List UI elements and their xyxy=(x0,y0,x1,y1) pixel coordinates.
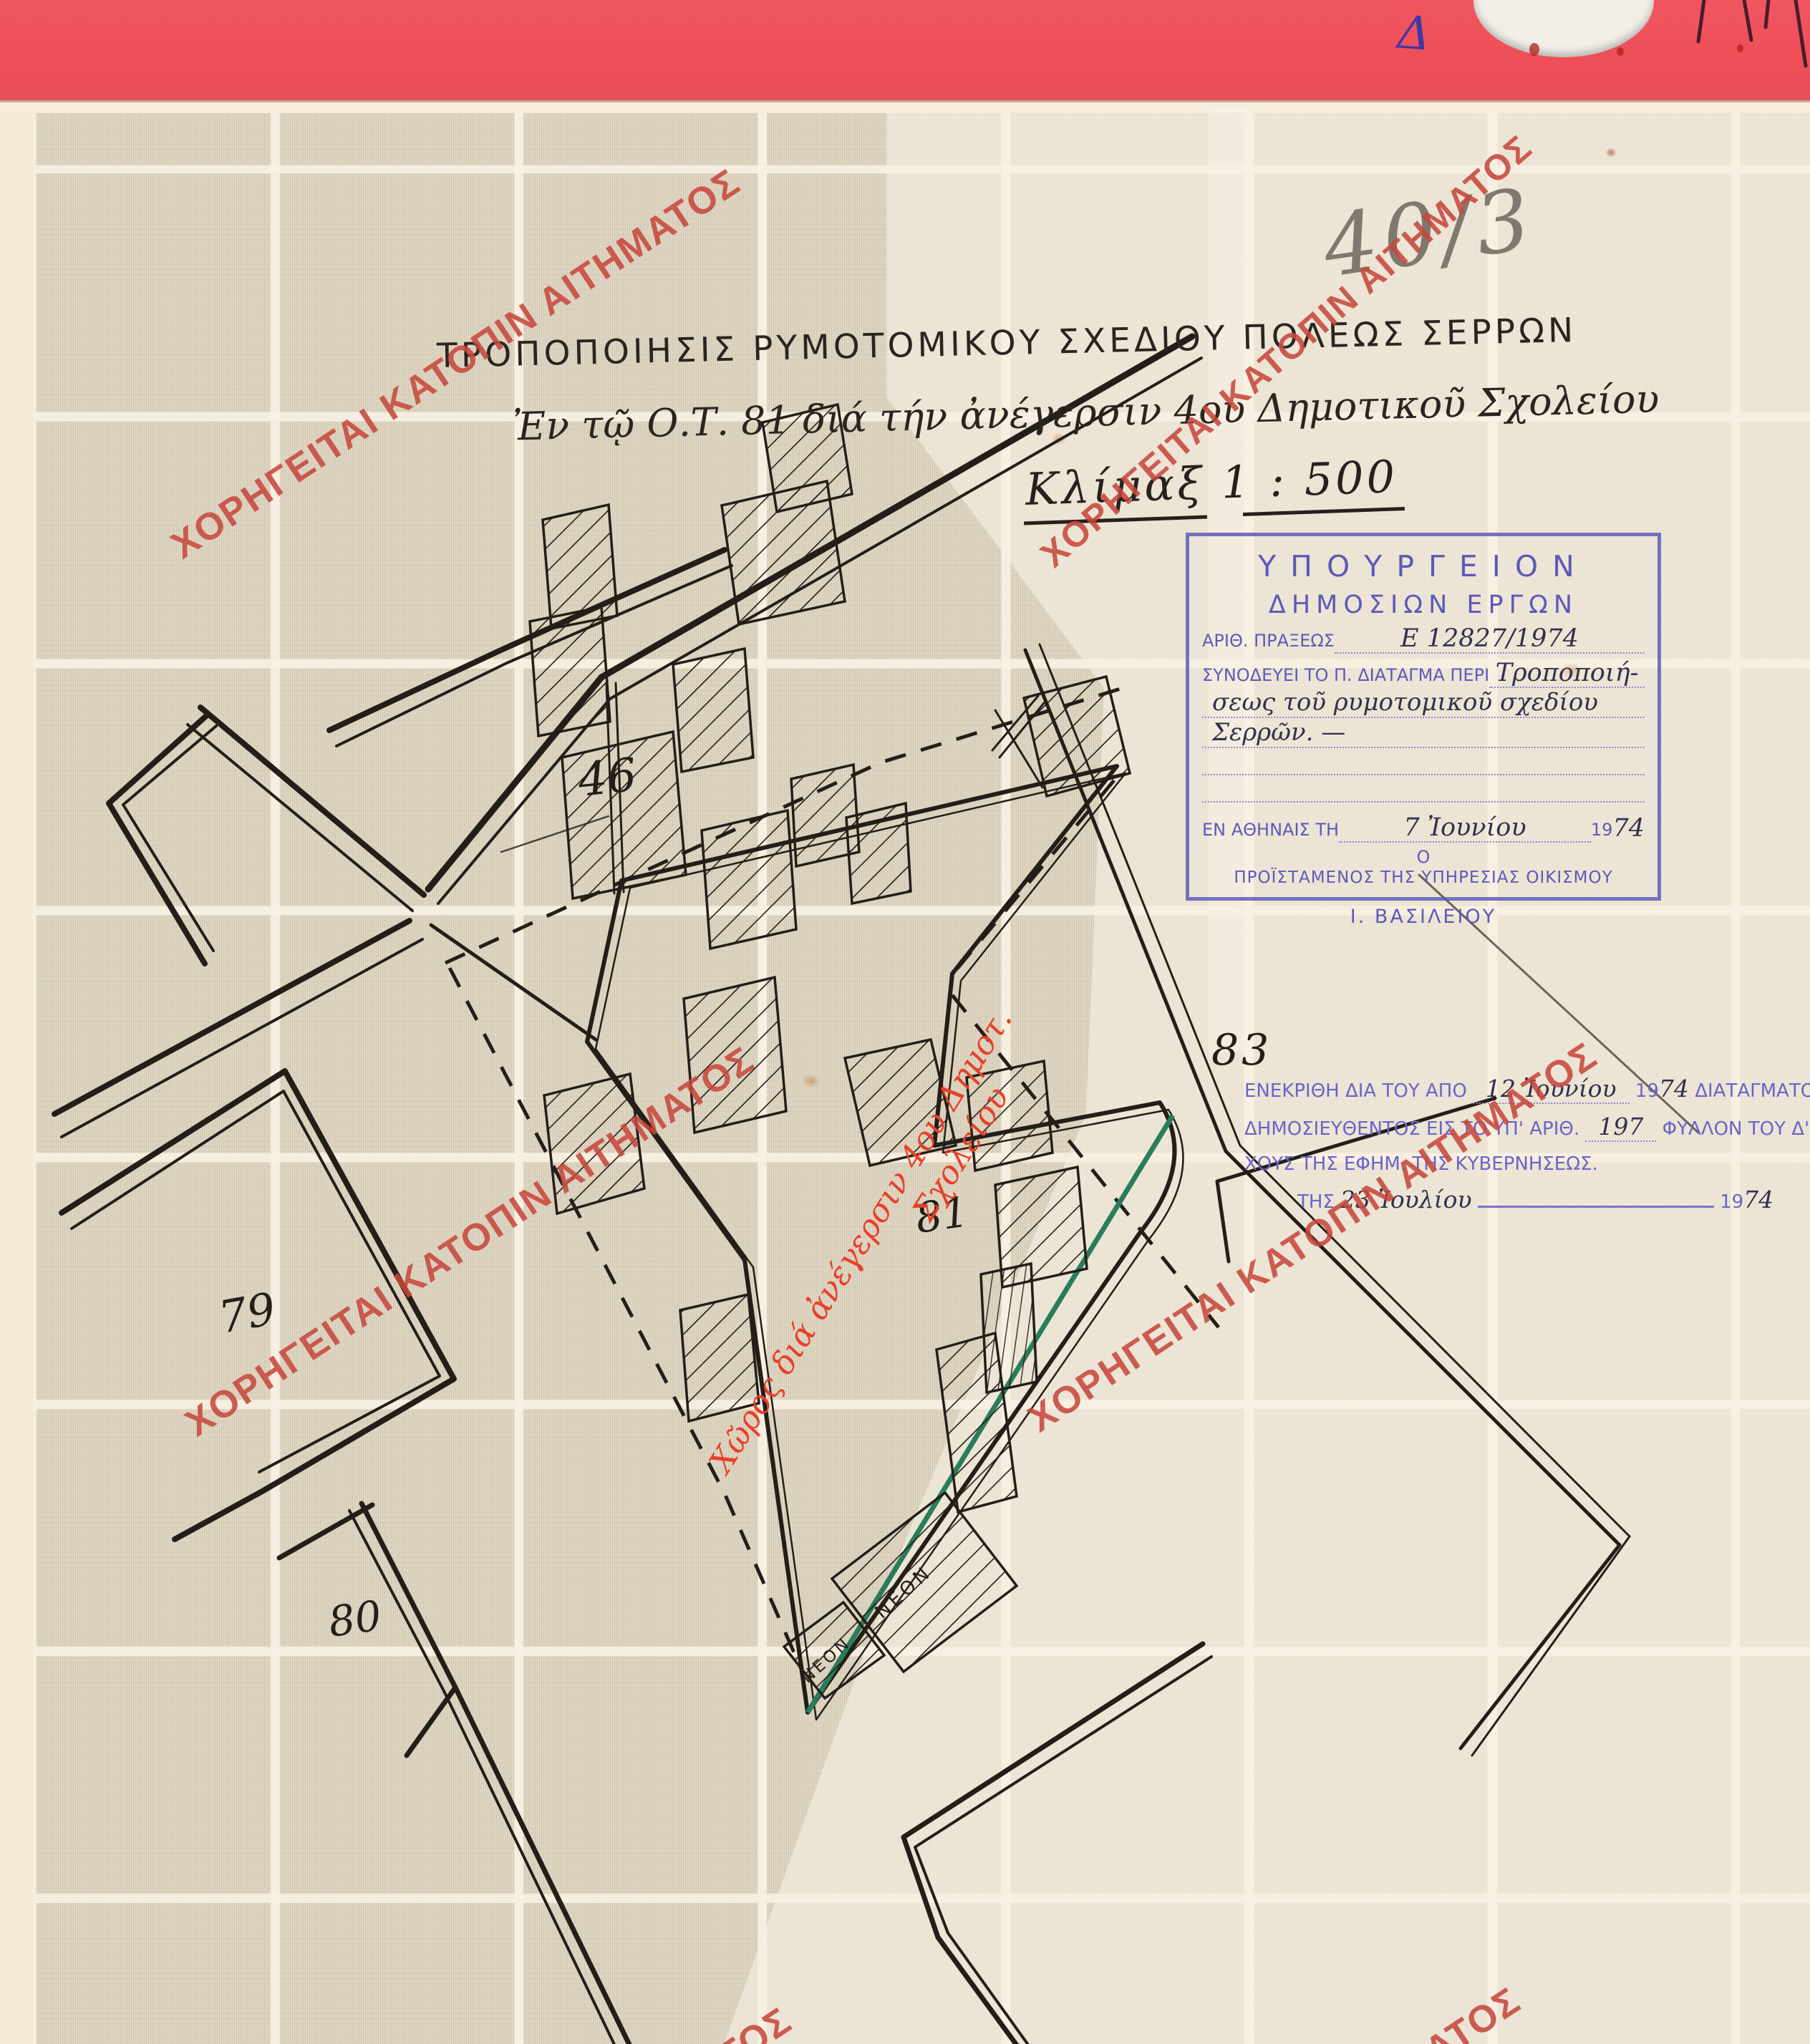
stamp-accompanies-label: ΣΥΝΟΔΕΥΕΙ ΤΟ Π. ΔΙΑΤΑΓΜΑ ΠΕΡΙ xyxy=(1202,665,1489,688)
stamp-empty-dotted-line xyxy=(1202,748,1645,775)
stamp-subject-line1: Τροποποιή- xyxy=(1489,659,1645,688)
plot-label-46: 46 xyxy=(575,749,639,808)
approval-line4-year-prefix: 19 xyxy=(1720,1191,1743,1213)
band-stain xyxy=(1529,43,1539,56)
stamp-year-value: 74 xyxy=(1612,814,1645,843)
hatched-building-vertical xyxy=(981,1264,1037,1392)
city-plan-drawing: 46 79 80 81 ΝΕΟΝ ΝΕΟΝ xyxy=(0,0,1810,2044)
plot-label-79: 79 xyxy=(215,1282,279,1344)
stamp-year-prefix: 19 xyxy=(1591,820,1613,843)
stamp-subject-line3: Σερρῶν. — xyxy=(1202,718,1645,748)
stamp-article: Ο xyxy=(1202,847,1645,867)
approval-line2-suffix: ΦΥΛΛΟΝ ΤΟΥ Δ' ΤΕΥ- xyxy=(1663,1118,1810,1140)
approval-line2-prefix: ΔΗΜΟΣΙΕΥΘΕΝΤΟΣ ΕΙΣ ΤΟ ΥΠ' ΑΡΙΘ. xyxy=(1244,1118,1579,1140)
stamp-subject-line2: σεως τοῦ ρυμοτομικοῦ σχεδίου xyxy=(1202,688,1645,718)
approval-line1-prefix: ΕΝΕΚΡΙΘΗ ΔΙΑ ΤΟΥ ΑΠΟ xyxy=(1244,1080,1467,1102)
approval-line1-year-prefix: 19 xyxy=(1635,1080,1659,1102)
classification-band: Δ xyxy=(0,0,1810,100)
stamp-empty-dotted-line xyxy=(1202,775,1645,803)
block-number-83: 83 xyxy=(1211,1025,1272,1075)
stamp-signatory-title: ΠΡΟΪΣΤΑΜΕΝΟΣ ΤΗΣ ΥΠΗΡΕΣΙΑΣ ΟΙΚΙΣΜΟΥ xyxy=(1202,868,1645,887)
stamp-place-label: ΕΝ ΑΘΗΝΑΙΣ ΤΗ xyxy=(1202,820,1339,843)
approval-line4-underline xyxy=(1478,1184,1714,1208)
stamp-date-value: 7 Ἰουνίου xyxy=(1339,814,1591,843)
band-pen-strokes xyxy=(1652,0,1810,86)
stamp-act-value: Ε 12827/1974 xyxy=(1335,625,1645,654)
stamp-ministry-line1: ΥΠΟΥΡΓΕΙΟΝ xyxy=(1202,549,1645,583)
band-delta-mark: Δ xyxy=(1395,6,1432,61)
approval-line1-year: 74 xyxy=(1659,1075,1689,1103)
approval-line4-year: 74 xyxy=(1743,1186,1773,1214)
stamp-ministry-line2: ΔΗΜΟΣΙΩΝ ΕΡΓΩΝ xyxy=(1202,591,1645,619)
stamp-signatory-name: Ι. ΒΑΣΙΛΕΙΟΥ xyxy=(1202,906,1645,928)
approval-line1-suffix: ΔΙΑΤΑΓΜΑΤΟΣ xyxy=(1695,1080,1810,1102)
approval-line2-number: 197 xyxy=(1585,1113,1656,1142)
ministry-stamp: ΥΠΟΥΡΓΕΙΟΝ ΔΗΜΟΣΙΩΝ ΕΡΓΩΝ ΑΡΙΘ. ΠΡΑΞΕΩΣ … xyxy=(1186,533,1661,901)
band-stain xyxy=(1617,47,1624,56)
stamp-act-label: ΑΡΙΘ. ΠΡΑΞΕΩΣ xyxy=(1202,631,1335,654)
approval-line3: ΧΟΥΣ ΤΗΣ ΕΦΗΜ. ΤΗΣ ΚΥΒΕΡΝΗΣΕΩΣ. xyxy=(1244,1147,1810,1182)
plot-label-80: 80 xyxy=(325,1591,384,1647)
band-notch xyxy=(1473,0,1654,57)
scanned-plan-document: 46 79 80 81 ΝΕΟΝ ΝΕΟΝ ΤΡΟΠΟΠΟΙΗΣΙΣ ΡΥΜΟΤ… xyxy=(0,0,1810,2044)
